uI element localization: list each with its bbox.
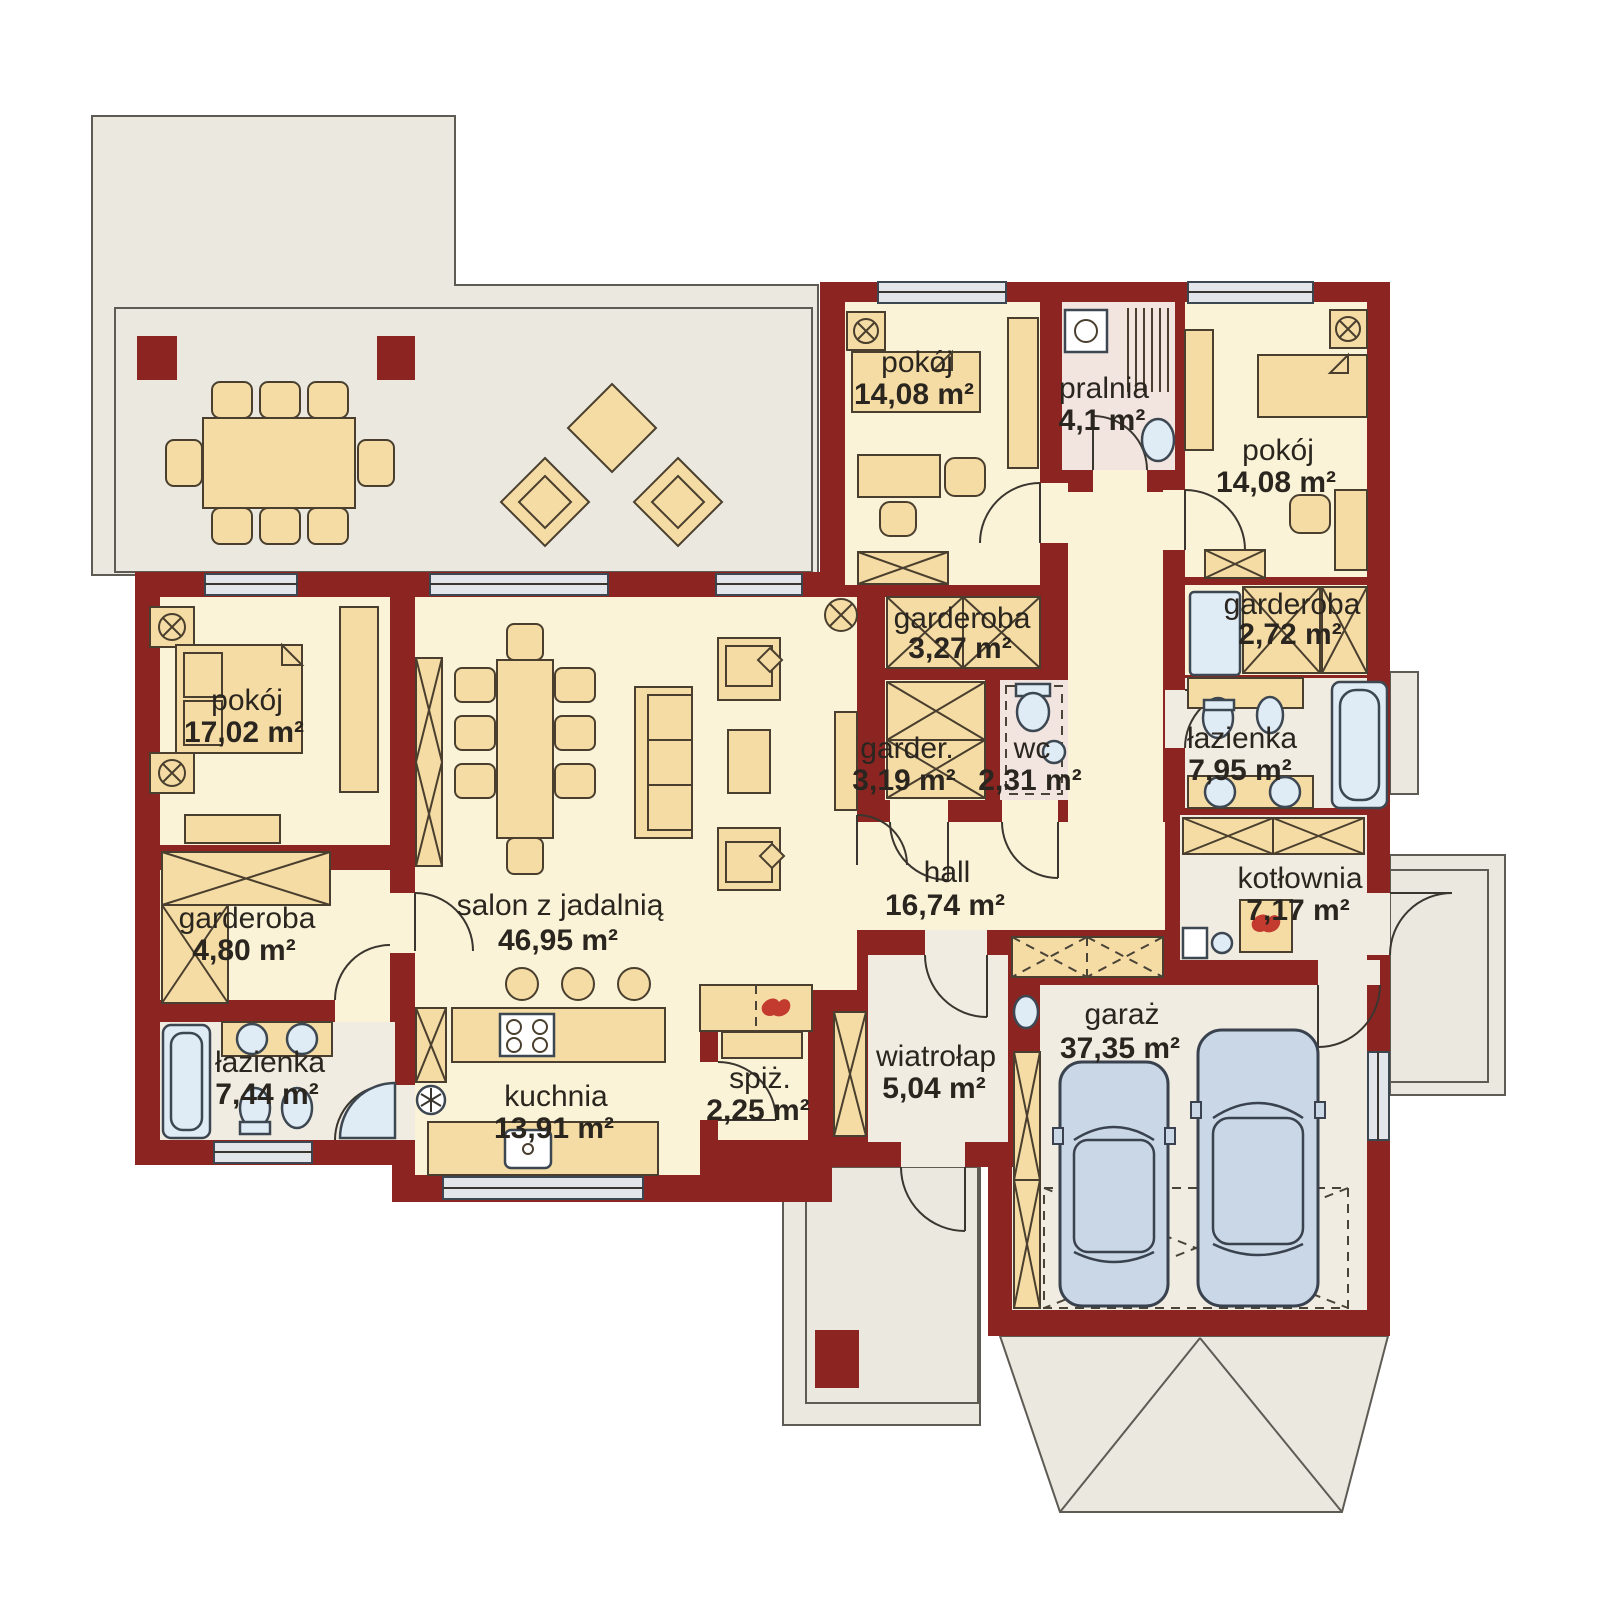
room-label: kotłownia [1237, 862, 1362, 895]
room-label: łazienka [215, 1046, 325, 1079]
room-label: garderoba [179, 902, 316, 935]
dining-table [497, 660, 553, 838]
desk [858, 455, 940, 497]
bar-stool [506, 968, 538, 1000]
room-area: 16,74 m² [885, 889, 1005, 922]
room-area: 5,04 m² [882, 1072, 985, 1105]
room-area: 46,95 m² [498, 924, 618, 957]
ceiling-lamp [825, 599, 857, 631]
room-label: garder. [860, 732, 953, 765]
window [430, 574, 608, 595]
flame-icon [762, 999, 791, 1017]
garage-sink [1014, 996, 1038, 1028]
entry-porch [783, 1167, 980, 1425]
terrace-pillar [137, 336, 177, 380]
window [205, 574, 297, 595]
room-label: garderoba [894, 602, 1031, 635]
coffee-table [728, 730, 770, 793]
garage-closet-dashed [1012, 937, 1163, 977]
room-area: 37,35 m² [1060, 1032, 1180, 1065]
room-area: 17,02 m² [184, 716, 304, 749]
car [1053, 1062, 1175, 1306]
dresser [185, 815, 280, 843]
room-area: 13,91 m² [494, 1112, 614, 1145]
room-area: 14,08 m² [854, 378, 974, 411]
room-label: garderoba [1224, 588, 1361, 621]
room-area: 3,27 m² [908, 632, 1011, 665]
room-area: 2,25 m² [706, 1094, 809, 1127]
room-area: 2,31 m² [978, 764, 1081, 797]
room-area: 4,80 m² [192, 934, 295, 967]
room-label: pokój [211, 684, 283, 717]
toilet [1017, 693, 1049, 731]
washing-machine [1065, 310, 1107, 352]
room-area: 4,1 m² [1059, 404, 1146, 437]
room-label: wc [1013, 732, 1051, 765]
room-area: 7,95 m² [1188, 754, 1291, 787]
sofa [635, 687, 692, 838]
spiz-shelf [722, 1032, 802, 1058]
chair [945, 458, 985, 496]
door-gap [1093, 470, 1147, 495]
desk [1335, 490, 1367, 570]
room-area: 7,44 m² [215, 1078, 318, 1111]
room-area: 14,08 m² [1216, 466, 1336, 499]
chair [1290, 495, 1330, 533]
window [1368, 1052, 1389, 1140]
office-chair [880, 502, 916, 536]
room-label: łazienka [1187, 722, 1297, 755]
window [443, 1177, 643, 1199]
room-label: pralnia [1059, 372, 1149, 405]
room-label: kuchnia [504, 1080, 608, 1113]
fridge [417, 1086, 445, 1114]
tall-cabinet [340, 607, 378, 792]
floor-plan: pokój 14,08 m² pralnia 4,1 m² pokój 14,0… [0, 0, 1600, 1600]
shelf [1185, 330, 1213, 450]
fireplace [700, 985, 812, 1031]
room-label: pokój [881, 346, 953, 379]
window [878, 282, 1006, 303]
bar-stool [562, 968, 594, 1000]
bar-stool [618, 968, 650, 1000]
room-label: pokój [1242, 434, 1314, 467]
terrace [92, 116, 818, 575]
bed [1258, 355, 1367, 417]
window [214, 1142, 312, 1163]
room-label: garaż [1084, 998, 1159, 1031]
hall-corridor [1068, 492, 1163, 822]
driveway [1000, 1336, 1388, 1512]
car [1191, 1030, 1325, 1306]
bath-niche [1390, 672, 1418, 794]
room-label: salon z jadalnią [457, 889, 664, 922]
ceiling-lamp [1330, 310, 1367, 348]
room-area: 2,72 m² [1238, 618, 1341, 651]
kitchen-island [452, 1008, 665, 1062]
laundry-sink [1142, 419, 1174, 461]
doormat [815, 1330, 859, 1388]
room-area: 3,19 m² [852, 764, 955, 797]
floor-plan-page: pokój 14,08 m² pralnia 4,1 m² pokój 14,0… [0, 0, 1600, 1600]
window [1188, 282, 1313, 303]
window [716, 574, 802, 595]
room-label: hall [924, 856, 971, 889]
room-label: spiż. [729, 1062, 791, 1095]
room-label: wiatrołap [875, 1040, 996, 1073]
ceiling-lamp [847, 312, 885, 350]
terrace-pillar [377, 336, 415, 380]
shelf [1008, 318, 1038, 468]
room-area: 7,17 m² [1246, 894, 1349, 927]
side-porch [1390, 855, 1505, 1095]
